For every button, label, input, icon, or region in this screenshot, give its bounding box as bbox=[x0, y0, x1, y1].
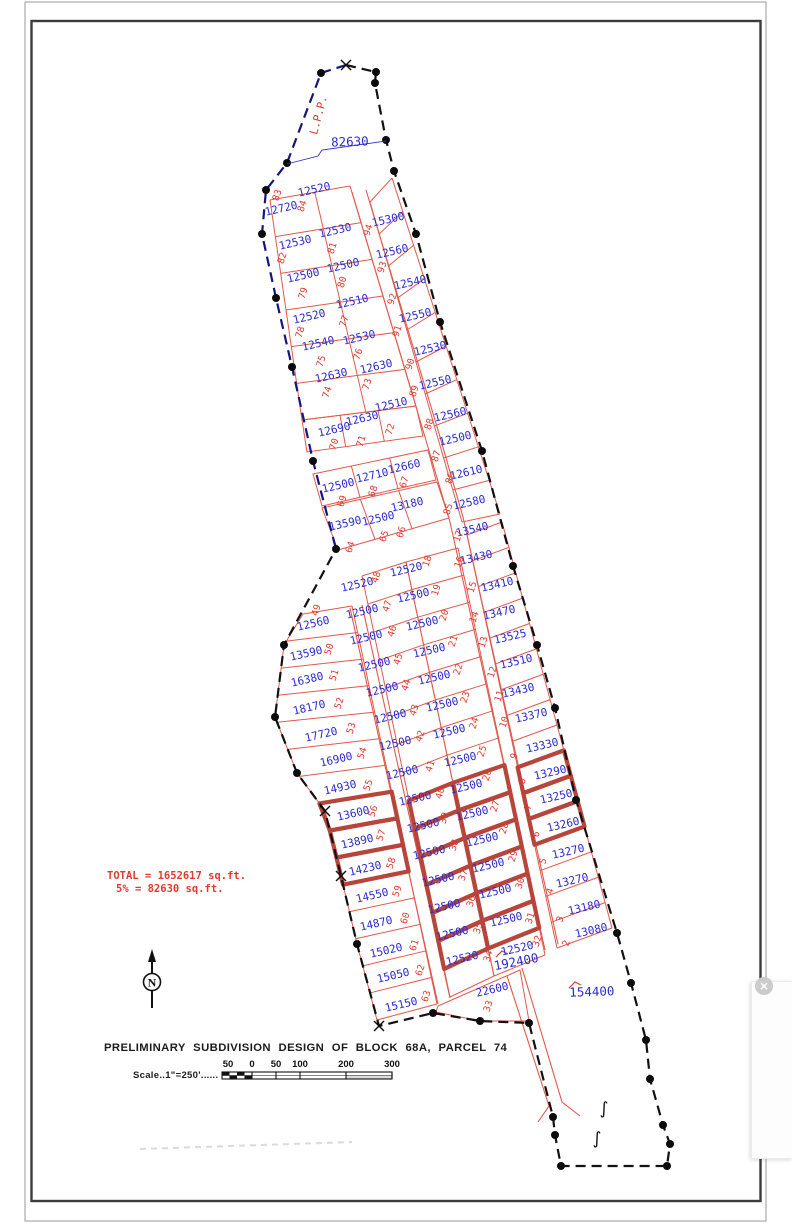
svg-text:13: 13 bbox=[477, 635, 491, 649]
svg-text:47: 47 bbox=[381, 599, 395, 613]
survey-point bbox=[642, 1036, 650, 1044]
svg-text:58: 58 bbox=[385, 856, 399, 871]
svg-text:76: 76 bbox=[352, 347, 366, 362]
svg-text:19: 19 bbox=[430, 583, 444, 598]
svg-text:50: 50 bbox=[223, 1059, 234, 1070]
svg-text:13180: 13180 bbox=[567, 898, 602, 918]
svg-text:12660: 12660 bbox=[387, 457, 422, 477]
svg-text:∫: ∫ bbox=[600, 1099, 609, 1119]
svg-text:14870: 14870 bbox=[359, 914, 394, 934]
svg-text:14550: 14550 bbox=[355, 886, 390, 906]
svg-text:54: 54 bbox=[356, 746, 370, 761]
survey-point bbox=[436, 318, 444, 326]
svg-text:61: 61 bbox=[408, 938, 422, 953]
svg-text:∫: ∫ bbox=[593, 1129, 602, 1149]
svg-text:66: 66 bbox=[395, 525, 409, 540]
svg-text:12500: 12500 bbox=[478, 882, 513, 902]
five-percent-line: 5% = 82630 sq.ft. bbox=[107, 883, 246, 896]
svg-text:12500: 12500 bbox=[385, 763, 420, 783]
svg-text:12500: 12500 bbox=[373, 707, 408, 727]
survey-point bbox=[663, 1162, 671, 1170]
drawing-title: PRELIMINARY SUBDIVISION DESIGN OF BLOCK … bbox=[104, 1042, 507, 1054]
svg-text:56: 56 bbox=[367, 804, 381, 819]
svg-text:80: 80 bbox=[336, 275, 350, 290]
svg-text:12500: 12500 bbox=[489, 910, 524, 930]
survey-point bbox=[382, 136, 390, 144]
survey-point bbox=[288, 363, 296, 371]
svg-text:43: 43 bbox=[408, 703, 422, 717]
svg-text:12500: 12500 bbox=[465, 830, 500, 850]
survey-point bbox=[332, 545, 340, 553]
svg-text:12500: 12500 bbox=[345, 602, 380, 622]
svg-text:12630: 12630 bbox=[314, 366, 349, 386]
svg-text:4: 4 bbox=[545, 887, 557, 896]
svg-text:13270: 13270 bbox=[555, 871, 590, 891]
svg-text:13600: 13600 bbox=[336, 804, 371, 824]
svg-text:44: 44 bbox=[400, 678, 414, 693]
svg-text:77: 77 bbox=[338, 314, 352, 328]
survey-point bbox=[271, 713, 279, 721]
svg-text:8: 8 bbox=[517, 777, 529, 786]
street-line bbox=[507, 976, 549, 1122]
svg-text:70: 70 bbox=[328, 437, 342, 452]
svg-text:64: 64 bbox=[344, 540, 358, 555]
svg-text:13510: 13510 bbox=[499, 652, 534, 672]
svg-text:24: 24 bbox=[468, 716, 482, 731]
svg-text:12550: 12550 bbox=[398, 306, 433, 326]
svg-text:7: 7 bbox=[523, 803, 535, 812]
svg-text:13080: 13080 bbox=[574, 921, 609, 941]
svg-text:65: 65 bbox=[378, 529, 392, 543]
survey-point bbox=[478, 447, 486, 455]
svg-text:32: 32 bbox=[531, 934, 545, 948]
svg-text:12500: 12500 bbox=[378, 734, 413, 754]
svg-text:12500: 12500 bbox=[417, 668, 452, 688]
svg-text:12500: 12500 bbox=[435, 924, 470, 944]
svg-text:12710: 12710 bbox=[355, 466, 390, 486]
svg-text:12500: 12500 bbox=[405, 614, 440, 634]
svg-text:12500: 12500 bbox=[432, 722, 467, 742]
svg-text:12530: 12530 bbox=[318, 221, 353, 241]
scale-label: Scale..1"=250'...... bbox=[133, 1070, 218, 1081]
survey-point bbox=[627, 979, 635, 987]
svg-text:12500: 12500 bbox=[471, 856, 506, 876]
svg-text:13180: 13180 bbox=[390, 495, 425, 515]
svg-text:69: 69 bbox=[336, 494, 350, 509]
svg-text:33: 33 bbox=[482, 999, 496, 1013]
svg-text:12540: 12540 bbox=[393, 273, 428, 293]
north-arrow-head bbox=[148, 949, 156, 962]
svg-text:17720: 17720 bbox=[304, 725, 339, 745]
svg-text:84: 84 bbox=[296, 199, 310, 214]
outer-page-border bbox=[25, 2, 766, 1221]
survey-point bbox=[371, 79, 379, 87]
svg-text:12520: 12520 bbox=[389, 560, 424, 580]
svg-text:100: 100 bbox=[292, 1059, 308, 1070]
survey-point bbox=[551, 1131, 559, 1139]
survey-point bbox=[659, 1121, 667, 1129]
svg-text:5: 5 bbox=[538, 857, 550, 866]
svg-text:200: 200 bbox=[338, 1059, 354, 1070]
survey-point bbox=[412, 230, 420, 238]
svg-text:21: 21 bbox=[447, 634, 461, 649]
svg-text:154400: 154400 bbox=[569, 983, 615, 1000]
survey-point bbox=[293, 769, 301, 777]
svg-text:12500: 12500 bbox=[427, 897, 462, 917]
subdivision-plat-drawing: 1272083125208412530821253081125007912500… bbox=[0, 0, 792, 1224]
svg-text:12510: 12510 bbox=[374, 395, 409, 415]
svg-text:12500: 12500 bbox=[398, 789, 433, 809]
svg-text:12500: 12500 bbox=[357, 655, 392, 675]
svg-text:57: 57 bbox=[375, 828, 389, 842]
survey-point bbox=[390, 167, 398, 175]
svg-text:16900: 16900 bbox=[319, 750, 354, 770]
survey-point bbox=[533, 641, 541, 649]
svg-text:20: 20 bbox=[438, 608, 452, 623]
svg-text:68: 68 bbox=[367, 484, 381, 499]
svg-text:50: 50 bbox=[323, 642, 337, 657]
svg-text:12500: 12500 bbox=[321, 476, 356, 496]
svg-text:13890: 13890 bbox=[340, 832, 375, 852]
survey-point bbox=[309, 457, 317, 465]
svg-text:12520: 12520 bbox=[340, 575, 375, 595]
svg-text:12530: 12530 bbox=[413, 339, 448, 359]
svg-text:74: 74 bbox=[321, 385, 335, 400]
total-area-note: TOTAL = 1652617 sq.ft. 5% = 82630 sq.ft. bbox=[107, 870, 246, 896]
svg-text:12500: 12500 bbox=[443, 750, 478, 770]
svg-text:75: 75 bbox=[315, 354, 329, 368]
survey-point bbox=[476, 1017, 484, 1025]
svg-text:12520: 12520 bbox=[292, 307, 327, 327]
svg-text:12500: 12500 bbox=[326, 256, 361, 276]
svg-text:82: 82 bbox=[276, 251, 290, 265]
plat-page: 1272083125208412530821253081125007912500… bbox=[0, 0, 792, 1224]
svg-text:12560: 12560 bbox=[375, 242, 410, 262]
close-icon[interactable]: × bbox=[755, 977, 773, 995]
svg-text:12500: 12500 bbox=[438, 429, 473, 449]
svg-text:12630: 12630 bbox=[359, 357, 394, 377]
survey-point bbox=[429, 1009, 437, 1017]
svg-text:82630: 82630 bbox=[331, 133, 369, 149]
svg-text:12500: 12500 bbox=[361, 509, 396, 529]
svg-text:67: 67 bbox=[398, 475, 412, 489]
svg-text:12520: 12520 bbox=[445, 949, 480, 969]
svg-text:N: N bbox=[148, 976, 157, 990]
svg-text:22: 22 bbox=[452, 662, 466, 676]
survey-point bbox=[525, 1019, 533, 1027]
svg-text:48: 48 bbox=[370, 570, 384, 585]
svg-text:3: 3 bbox=[555, 915, 567, 924]
svg-text:78: 78 bbox=[294, 325, 308, 340]
svg-text:15050: 15050 bbox=[376, 966, 411, 986]
survey-point bbox=[258, 230, 266, 238]
svg-text:51: 51 bbox=[328, 668, 342, 683]
inner-page-border bbox=[32, 21, 761, 1201]
svg-text:91: 91 bbox=[391, 324, 405, 339]
svg-text:12500: 12500 bbox=[286, 266, 321, 286]
svg-text:79: 79 bbox=[297, 286, 311, 301]
survey-point bbox=[557, 1162, 565, 1170]
svg-text:15300: 15300 bbox=[371, 210, 406, 230]
svg-text:18: 18 bbox=[421, 554, 435, 569]
svg-text:15150: 15150 bbox=[384, 995, 419, 1015]
svg-text:29: 29 bbox=[507, 849, 521, 864]
survey-point bbox=[353, 940, 361, 948]
svg-text:53: 53 bbox=[345, 721, 359, 735]
svg-text:13525: 13525 bbox=[493, 627, 528, 647]
svg-text:0: 0 bbox=[249, 1059, 254, 1070]
survey-point bbox=[666, 1140, 674, 1148]
svg-text:12520: 12520 bbox=[297, 180, 332, 200]
survey-point bbox=[272, 294, 280, 302]
survey-point bbox=[262, 186, 270, 194]
svg-text:37: 37 bbox=[457, 868, 471, 882]
survey-point bbox=[317, 69, 325, 77]
svg-text:14: 14 bbox=[468, 610, 482, 625]
svg-text:13270: 13270 bbox=[551, 842, 586, 862]
svg-text:14930: 14930 bbox=[323, 778, 358, 798]
svg-text:62: 62 bbox=[414, 963, 428, 977]
svg-text:59: 59 bbox=[391, 884, 405, 899]
svg-text:45: 45 bbox=[392, 652, 406, 666]
svg-text:55: 55 bbox=[362, 778, 376, 792]
floating-side-panel: × bbox=[751, 981, 792, 1159]
svg-text:52: 52 bbox=[333, 696, 347, 710]
survey-point bbox=[646, 1075, 654, 1083]
svg-text:60: 60 bbox=[399, 911, 413, 926]
svg-text:12500: 12500 bbox=[425, 695, 460, 715]
svg-text:42: 42 bbox=[414, 729, 428, 743]
survey-point bbox=[613, 929, 621, 937]
svg-text:72: 72 bbox=[384, 422, 398, 436]
svg-text:300: 300 bbox=[384, 1059, 400, 1070]
svg-text:12630: 12630 bbox=[345, 409, 380, 429]
svg-text:13370: 13370 bbox=[514, 706, 549, 726]
svg-text:81: 81 bbox=[326, 241, 340, 256]
svg-text:25: 25 bbox=[476, 744, 490, 758]
svg-text:41: 41 bbox=[424, 759, 438, 774]
svg-text:18170: 18170 bbox=[292, 698, 327, 718]
svg-text:13590: 13590 bbox=[289, 644, 324, 664]
svg-text:12560: 12560 bbox=[433, 405, 468, 425]
svg-text:73: 73 bbox=[361, 377, 375, 391]
svg-text:23: 23 bbox=[459, 690, 473, 704]
svg-text:71: 71 bbox=[355, 434, 369, 449]
svg-text:83: 83 bbox=[271, 188, 285, 202]
svg-text:27: 27 bbox=[489, 799, 503, 813]
svg-text:12500: 12500 bbox=[412, 641, 447, 661]
svg-text:12540: 12540 bbox=[301, 334, 336, 354]
svg-text:16380: 16380 bbox=[290, 670, 325, 690]
total-line: TOTAL = 1652617 sq.ft. bbox=[107, 870, 246, 883]
svg-text:63: 63 bbox=[420, 989, 434, 1003]
svg-text:13430: 13430 bbox=[501, 681, 536, 701]
svg-text:12500: 12500 bbox=[396, 586, 431, 606]
svg-text:13590: 13590 bbox=[328, 514, 363, 534]
svg-text:12500: 12500 bbox=[349, 628, 384, 648]
survey-point bbox=[549, 1113, 557, 1121]
svg-text:13470: 13470 bbox=[482, 603, 517, 623]
svg-text:12500: 12500 bbox=[449, 777, 484, 797]
svg-text:50: 50 bbox=[271, 1059, 282, 1070]
survey-point bbox=[551, 704, 559, 712]
survey-point bbox=[280, 641, 288, 649]
survey-point bbox=[509, 562, 517, 570]
svg-text:12510: 12510 bbox=[335, 292, 370, 312]
svg-text:30: 30 bbox=[514, 876, 528, 891]
svg-text:46: 46 bbox=[386, 624, 400, 639]
survey-point bbox=[372, 68, 380, 76]
svg-text:13410: 13410 bbox=[480, 575, 515, 595]
